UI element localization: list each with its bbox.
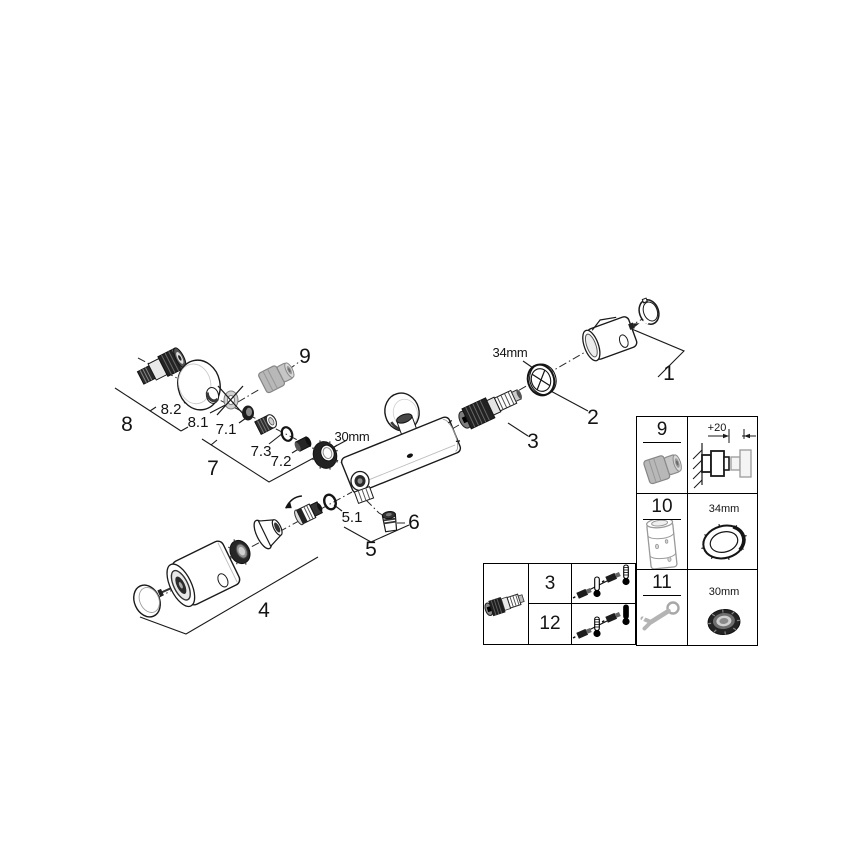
thermometer-icon (593, 617, 600, 637)
callout-5: 5 (365, 538, 377, 561)
volume-nub-icon (637, 443, 688, 493)
bottom-table-icons-12 (572, 604, 635, 644)
threaded-connector-part (255, 413, 279, 434)
callout-8: 8 (121, 413, 133, 436)
wall-hatch (693, 450, 702, 488)
callout-7: 7 (207, 457, 219, 480)
callout-3: 3 (527, 430, 539, 453)
dim-34mm-table-label: 34mm (709, 503, 740, 515)
nut-30mm-detail: 30mm (688, 570, 757, 645)
callout-1: 1 (663, 362, 675, 385)
side-table-detail-10: 34mm (688, 493, 757, 569)
thermo-cartridge-part (456, 384, 526, 432)
callout-8-2: 8.2 (161, 401, 182, 418)
dim-30mm-label: 30mm (335, 429, 370, 444)
plus-20-label: +20 (708, 422, 727, 434)
dim-30mm-table-label: 30mm (709, 586, 740, 598)
callout-2: 2 (587, 406, 599, 429)
callout-7-2: 7.2 (271, 453, 292, 470)
exploded-parts-diagram-page: 1 2 3 4 5 5.1 6 7 7.1 7.2 7.3 8 8.1 8.2 … (0, 0, 868, 868)
side-table-detail-9: +20 (688, 417, 757, 493)
callout-5-1: 5.1 (342, 509, 363, 526)
calibration-icons-row-12 (572, 604, 634, 643)
o-ring-5-1-part (322, 493, 337, 511)
holder-cap-ring-part (635, 296, 662, 327)
extension-20mm-diagram: +20 (688, 417, 757, 493)
thermometer-icon (622, 605, 629, 625)
callout-8-1: 8.1 (188, 414, 209, 431)
side-table-detail-11: 30mm (688, 569, 757, 645)
thermometer-icon (593, 577, 600, 597)
callout-7-3: 7.3 (251, 443, 272, 460)
flow-arrow-icon (283, 495, 303, 509)
leader-3 (508, 423, 528, 436)
o-ring-part (280, 426, 294, 443)
thermometer-icon (622, 565, 629, 585)
side-table-ref-10: 10 (643, 496, 681, 520)
extension-tube-icon (637, 520, 688, 569)
bracket-1 (627, 327, 684, 377)
side-table-ref-11: 11 (643, 572, 681, 596)
bottom-table-ref-12-cell: 12 (529, 604, 572, 644)
cartridge-mini-icon (572, 587, 592, 601)
retainer-ring-part (242, 406, 254, 421)
cartridge-icon (484, 564, 527, 643)
callout-7-1: 7.1 (216, 421, 237, 438)
handle-cap-part (129, 581, 165, 621)
ring-34mm-detail: 34mm (688, 494, 757, 569)
calibration-icons-row-3 (572, 564, 634, 603)
check-valve-part (283, 489, 325, 528)
callout-6: 6 (408, 511, 420, 534)
grub-cap-part (382, 511, 398, 532)
bottom-table-cartridge-cell (484, 564, 529, 644)
bottom-table-ref-3: 3 (529, 564, 571, 603)
bottom-table-ref-12: 12 (529, 604, 571, 644)
spare-parts-bottom-table: 3 (483, 563, 636, 645)
side-table-cell-9: 9 (637, 417, 688, 493)
side-table-ref-9: 9 (643, 419, 681, 443)
side-table-cell-10: 10 (637, 493, 688, 569)
wrench-icon (637, 596, 688, 645)
callout-9: 9 (299, 345, 311, 368)
bottom-table-ref-3-cell: 3 (529, 564, 572, 604)
bottom-table-icons-3 (572, 564, 635, 604)
dim-34mm-label: 34mm (493, 345, 528, 360)
leader-2 (547, 389, 588, 411)
shower-holder-part (578, 311, 639, 363)
volume-nub-part (258, 359, 298, 394)
cone-escutcheon-part (251, 512, 288, 551)
side-table-cell-11: 11 (637, 569, 688, 645)
callout-4: 4 (258, 599, 270, 622)
spare-parts-side-table: 9 (636, 416, 758, 646)
cartridge-mini-icon (572, 627, 592, 641)
